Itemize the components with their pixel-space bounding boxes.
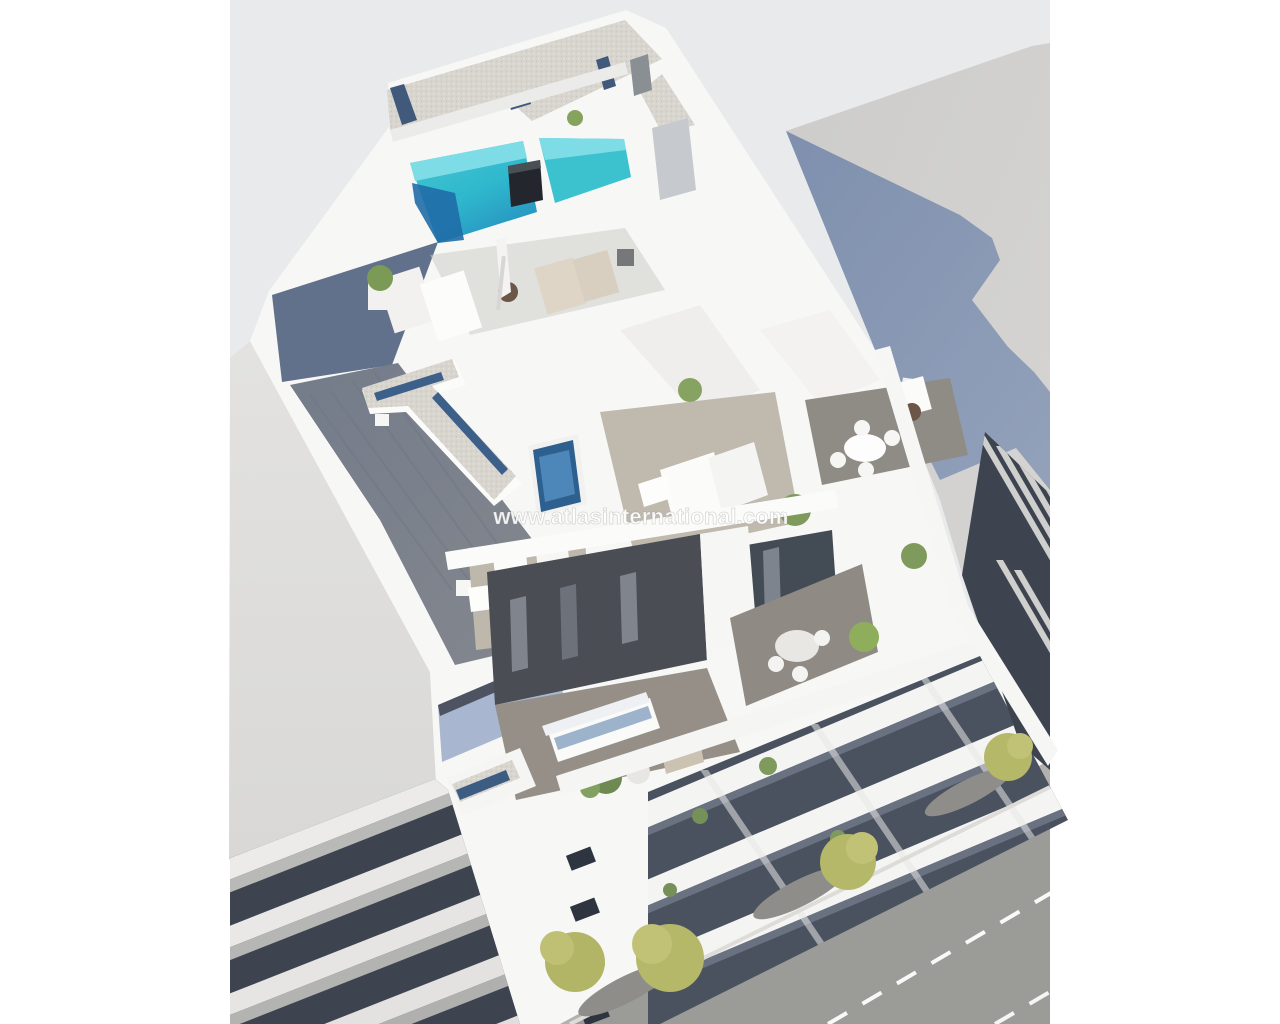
svg-text:www.atlasinternational.com: www.atlasinternational.com [492, 504, 788, 529]
